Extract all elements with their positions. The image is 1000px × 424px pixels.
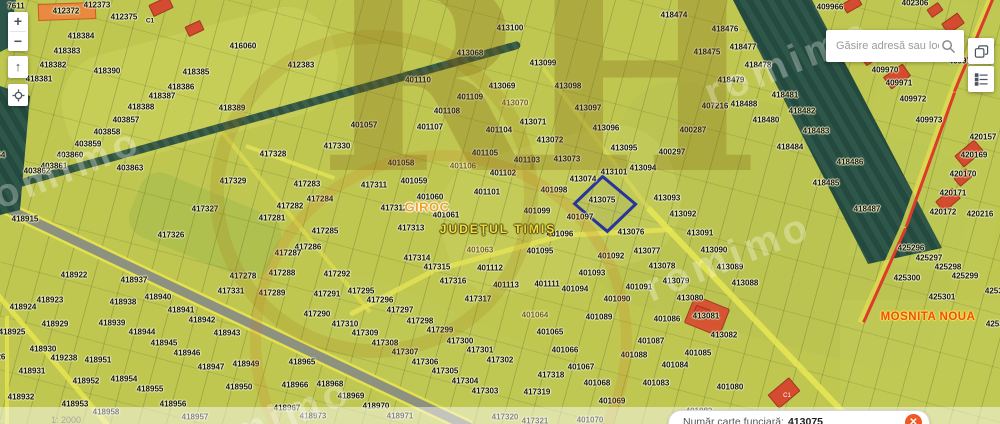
parcel-label: 418479 [718,76,745,85]
parcel-label: 412383 [288,61,315,70]
parcel-label: 401059 [401,177,428,186]
parcel-label: 403858 [94,128,121,137]
parcel-label: C1 [146,18,154,25]
parcel-label: 401113 [493,281,519,290]
parcel-label: 403863 [117,164,144,173]
parcel-label: 401101 [474,188,500,197]
parcel-label: 417306 [412,358,439,367]
parcel-label: 7611 [7,2,24,11]
parcel-label: 417283 [294,180,321,189]
parcel-label: 413100 [497,24,524,33]
parcel-label: 418923 [37,296,64,305]
parcel-label: 417300 [447,337,474,346]
parcel-label: 417302 [487,356,514,365]
parcel-label: 401088 [621,351,648,360]
north-arrow-button[interactable]: ↑ [8,56,28,78]
parcel-label: 401068 [584,379,611,388]
parcel-label: 417298 [407,317,434,326]
map-canvas[interactable]: 7611412372412373412375C14160604183844183… [0,0,1000,424]
parcel-label: 413073 [554,155,581,164]
parcel-label: 401103 [514,156,540,165]
parcel-label: 409971 [886,79,913,88]
watermark-text: romimo [698,9,879,117]
parcel-label: 409972 [900,95,927,104]
parcel-label: 413069 [489,82,516,91]
building [184,19,204,36]
parcel-label: 418487 [854,205,881,214]
parcel-label: 401061 [433,211,460,220]
parcel-label: 401080 [717,383,744,392]
parcel-label: 401084 [662,361,689,370]
parcel-label: 418951 [85,356,112,365]
search-icon[interactable] [941,39,956,54]
forest-area [0,0,1000,424]
parcel-label: 401066 [552,346,579,355]
parcel-label: 418384 [68,32,95,41]
parcel-label: 417319 [524,388,551,397]
parcel-label: 413092 [670,210,697,219]
parcel-label: 417326 [158,231,185,240]
parcel-label: 418388 [128,103,155,112]
parcel-label: 409970 [872,66,899,75]
parcel-label: 417317 [465,295,492,304]
watermark-ring [250,150,632,424]
parcel-label: 418968 [317,380,344,389]
parcel-label: 413091 [687,229,714,238]
parcel-label: 425296 [898,244,925,253]
basemap-icon [974,44,989,59]
road-red [905,92,956,228]
parcel-label: 417307 [392,348,419,357]
search-box [826,30,964,62]
parcel-label: 420172 [930,208,957,217]
place-label-mosnita-noua: MOSNITA NOUA [881,311,976,323]
parcel-label: 401107 [417,123,443,132]
popup-label: Număr carte funciară: [683,416,784,424]
parcel-label: 401091 [626,283,653,292]
parcel-label: 413094 [630,164,657,173]
parcel-label: 417314 [404,254,431,263]
parcel-label: 42530 [985,287,1000,296]
parcel-label: 401065 [537,328,564,337]
parcel-label: 416060 [230,42,257,51]
zoom-out-button[interactable]: − [8,32,28,51]
parcel-label: 425301 [929,293,956,302]
parcel-label: 403864 [0,151,5,160]
parcel-label: 403859 [75,140,102,149]
parcel-label: 413095 [611,144,638,153]
parcel-label: 407216 [702,102,729,111]
parcel-label: 400287 [680,126,707,135]
parcel-label: 401086 [654,315,681,324]
parcel-label: 417309 [352,329,379,338]
parcel-label: 418946 [174,349,201,358]
parcel-label: 401095 [527,247,554,256]
road-yellow [433,233,563,273]
parcel-label: 401093 [579,269,606,278]
parcel-label: 401064 [522,311,549,320]
watermark-ring [210,30,538,358]
parcel-label: 401089 [586,313,613,322]
field-patch [576,67,983,382]
parcel-label: 418942 [189,316,216,325]
parcel-label: 417301 [467,346,494,355]
road-yellow [646,206,862,424]
parcel-label: 401106 [450,162,476,171]
search-input[interactable] [834,39,941,53]
parcel-label: 418955 [137,385,164,394]
zoom-in-button[interactable]: + [8,12,28,31]
place-label-judetul-timis: JUDEŢUL TIMIŞ [440,222,556,236]
building [883,63,911,89]
parcel-label: 417291 [314,290,341,299]
parcel-label: 403860 [57,151,84,160]
parcel-label: 418483 [803,127,830,136]
parcel-label: 401094 [562,285,589,294]
forest-area [0,0,1000,424]
parcel-label: 401057 [351,121,378,130]
parcel-label: 418945 [151,339,178,348]
parcel-label: 413099 [530,59,557,68]
parcel-label: 420216 [967,210,994,219]
parcel-label: 417316 [440,277,467,286]
parcel-label: 413074 [570,175,597,184]
parcel-label: 417287 [275,249,302,258]
place-label-giroc: GIROC [404,200,449,215]
parcel-label: 417285 [312,227,339,236]
parcel-label: 417330 [324,142,351,151]
parcel-label: 418475 [694,48,721,57]
parcel-label: 401102 [490,169,516,178]
field-patch [291,260,628,424]
popup-parcel-number: 413075 [788,416,823,424]
parcel-label: 418478 [745,61,772,70]
parcel-label: 401092 [598,252,625,261]
parcel-grid-lines [0,0,1000,424]
parcel-label: 417289 [259,289,286,298]
building [935,188,961,213]
parcel-label: 417297 [387,306,414,315]
parcel-label: 401112 [477,264,503,273]
parcel-label: 413079 [663,277,690,286]
parcel-label: 401108 [434,107,460,116]
parcel-label: 401069 [599,397,626,406]
parcel-label: 413070 [502,99,529,108]
parcel-label: 418969 [338,392,365,401]
parcel-label: 418381 [26,75,53,84]
parcel-label: 420170 [950,170,977,179]
parcel-label: 418474 [661,11,688,20]
parcel-label: 417288 [269,269,296,278]
parcel-label: 418477 [730,43,757,52]
parcel-label: 418966 [282,381,309,390]
parcel-label: 413077 [634,247,661,256]
parcel-label: 420169 [961,151,988,160]
building [926,2,943,18]
parcel-info-popup: Număr carte funciară: 413075 ✕ [668,410,930,424]
parcel-label: 425299 [952,272,979,281]
parcel-label: 418485 [813,179,840,188]
parcel-label: 403857 [113,116,140,125]
parcel-label: 418940 [145,293,172,302]
parcel-label: 413089 [717,263,744,272]
parcel-label: 417304 [452,377,479,386]
parcel-label: 401098 [541,186,568,195]
parcel-labels-layer: 7611412372412373412375C14160604183844183… [0,0,1000,424]
parcel-label: 401109 [457,93,483,102]
parcel-label: 417305 [432,367,459,376]
parcel-label: 417331 [218,287,245,296]
parcel-label: 417313 [398,224,425,233]
parcel-label: 417310 [332,320,359,329]
parcel-label: 402306 [902,0,929,8]
parcel-label: 401067 [568,363,595,372]
parcel-label: 417327 [192,205,219,214]
parcel-label: 418941 [168,306,195,315]
parcel-label: 413090 [701,246,728,255]
building [148,0,173,17]
parcel-label: 418950 [226,383,253,392]
building [953,168,972,187]
parcel-label: 418382 [40,61,67,70]
parcel-label: 409966 [817,3,844,12]
parcel-label: 413093 [654,194,681,203]
parcel-label: 417303 [472,387,499,396]
parcel-label: 425297 [916,254,943,263]
road-grey [0,195,472,424]
parcel-label: 418486 [837,158,864,167]
parcel-label: 418387 [149,92,176,101]
parcel-label: 418965 [289,358,316,367]
parcel-label: 417299 [427,326,454,335]
parcel-label: 401099 [524,207,551,216]
road-yellow [0,291,114,424]
parcel-label: 418922 [61,271,88,280]
parcel-label: 418385 [183,68,210,77]
parcel-label: 417318 [538,371,565,380]
parcel-label: 401083 [643,379,670,388]
parcel-label: 417329 [220,177,247,186]
road-red [862,228,907,323]
parcel-label: 425298 [935,263,962,272]
parcel-label: 417278 [230,272,257,281]
parcel-label: 425300 [894,274,921,283]
north-arrow-icon: ↑ [15,59,22,74]
parcel-label: 417308 [372,339,399,348]
parcel-label: 418947 [198,363,225,372]
tree-line [0,41,521,194]
locate-button[interactable] [8,84,28,106]
parcel-label: 413078 [649,262,676,271]
parcel-label: 401087 [638,337,665,346]
parcel-label: 401058 [388,159,415,168]
parcel-label: 417290 [304,310,331,319]
parcel-label: 418939 [99,319,126,328]
parcel-label: 418944 [129,328,156,337]
zoom-control: + − [8,12,28,51]
parcel-label: 418383 [54,47,81,56]
parcel-label: 418943 [214,329,241,338]
parcel-label: 418938 [110,298,137,307]
parcel-label: C1 [783,393,791,399]
parcel-label: 418488 [731,100,758,109]
close-icon[interactable]: ✕ [905,414,922,424]
parcel-label: 401104 [486,126,512,135]
parcel-label: 418484 [777,143,804,152]
parcel-label: 413072 [537,136,564,145]
parcel-label: 418386 [168,83,195,92]
parcel-label: 420157 [970,133,997,142]
highlighted-parcel-red[interactable] [684,295,730,337]
parcel-label: 401060 [417,193,444,202]
parcel-label: 401085 [685,349,712,358]
parcel-label: 418481 [772,91,799,100]
parcel-label: 418482 [789,107,816,116]
parcel-label: 418929 [42,320,69,329]
parcel-label: 413071 [520,118,547,127]
building [954,139,984,167]
parcel-label: 418954 [111,375,138,384]
parcel-label: 400297 [659,148,686,157]
parcel-label: 42530 [986,320,1000,329]
parcel-label: 418932 [8,393,35,402]
forest-area [0,0,1000,424]
buildings-layer [0,0,1000,424]
parcel-label: 401105 [472,149,498,158]
highlighted-parcel-orange[interactable] [38,2,97,21]
field-patch [51,0,350,174]
road-yellow [220,131,371,314]
parcel-label: 413096 [593,124,620,133]
parcel-label: 418476 [712,25,739,34]
parcel-label: 401090 [604,295,631,304]
parcel-grid-lines [0,0,1000,424]
parcel-label: 412375 [111,13,138,22]
parcel-label: 418949 [233,360,260,369]
road-yellow [562,227,672,238]
basemap-gallery-button[interactable] [968,38,994,64]
parcel-label: 420171 [940,189,967,198]
legend-button[interactable] [968,66,994,92]
parcel-label: 417311 [361,181,387,190]
building [767,377,800,409]
legend-icon [974,72,989,87]
parcel-label: 401111 [534,280,559,289]
road-yellow [349,268,436,316]
parcel-label: 417284 [307,195,334,204]
parcel-label: 418390 [94,67,121,76]
building [841,0,862,13]
parcel-label: 418389 [219,104,246,113]
parcel-label: 417281 [259,214,286,223]
parcel-label: 418925 [0,328,25,337]
locate-icon [12,89,25,102]
watermark-monogram: RH [318,0,748,231]
parcel-label: 418480 [753,116,780,125]
parcel-label: 413088 [732,279,759,288]
parcel-label: 417312 [381,204,408,213]
parcel-label: 418931 [19,367,46,376]
